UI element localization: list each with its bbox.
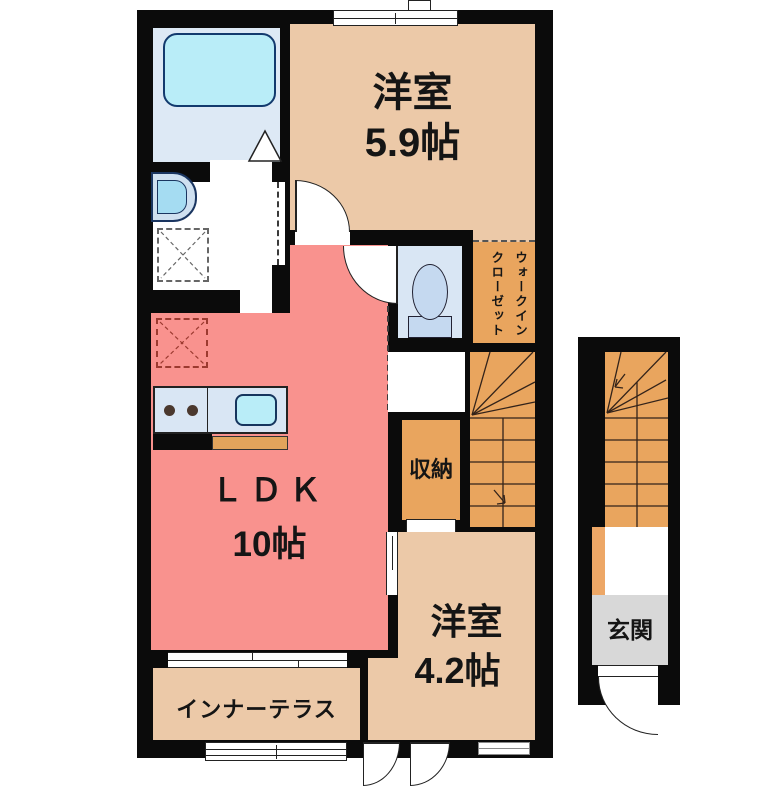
ldk-bedroom2-sliding-door <box>386 532 398 595</box>
floorplan-canvas: 洋室 5.9帖 ウォークイン クローゼット ＬＤＫ 10帖 <box>0 0 781 800</box>
bath-folding-door-icon <box>245 128 285 164</box>
washroom-door-opening <box>240 290 272 313</box>
ldk-terrace-sliding-door <box>168 652 347 668</box>
bedroom2-door1-arc-icon <box>363 742 400 786</box>
stairs-2f-icon <box>470 352 535 527</box>
toilet-bowl-icon <box>412 264 448 320</box>
kitchen-sink-icon <box>235 394 277 426</box>
stove-burner-icon <box>187 405 198 416</box>
bedroom2-door2-arc-icon <box>410 742 450 786</box>
terrace-window <box>205 742 347 761</box>
entrance-label: 玄関 <box>592 619 668 642</box>
bedroom1-label: 洋室 <box>290 73 535 113</box>
hall-floor <box>388 352 465 412</box>
bedroom2-label: 洋室 <box>398 604 535 640</box>
stove-burner-icon <box>164 405 175 416</box>
sink-basin-icon <box>157 180 187 214</box>
entrance-door-arc-icon <box>598 677 658 735</box>
counter-edge <box>212 436 288 450</box>
wic-line1: ウォークイン <box>507 251 531 341</box>
counter-base-wall <box>153 434 212 450</box>
wic-line2: クローゼット <box>484 251 508 341</box>
ldk-size: 10帖 <box>151 527 388 562</box>
storage-label: 収納 <box>402 459 460 481</box>
bedroom1-window <box>333 10 458 26</box>
ldk-label: ＬＤＫ <box>151 474 388 506</box>
washer-space-icon <box>157 228 209 282</box>
washroom-sliding-door <box>272 182 285 265</box>
stairs-1f-icon <box>605 352 668 527</box>
floor1-step-strip <box>592 527 605 595</box>
inner-terrace-label: インナーテラス <box>153 699 360 721</box>
closet-entry-dashed <box>473 230 535 242</box>
fridge-space-icon <box>156 318 208 368</box>
bathtub-icon <box>163 33 276 107</box>
bedroom2-size: 4.2帖 <box>380 653 535 689</box>
bedroom1-size: 5.9帖 <box>290 123 535 163</box>
walk-in-closet-label: ウォークイン クローゼット <box>479 251 531 341</box>
vent-notch <box>408 0 431 11</box>
entrance-door-leaf <box>598 665 658 677</box>
small-window <box>478 742 530 755</box>
